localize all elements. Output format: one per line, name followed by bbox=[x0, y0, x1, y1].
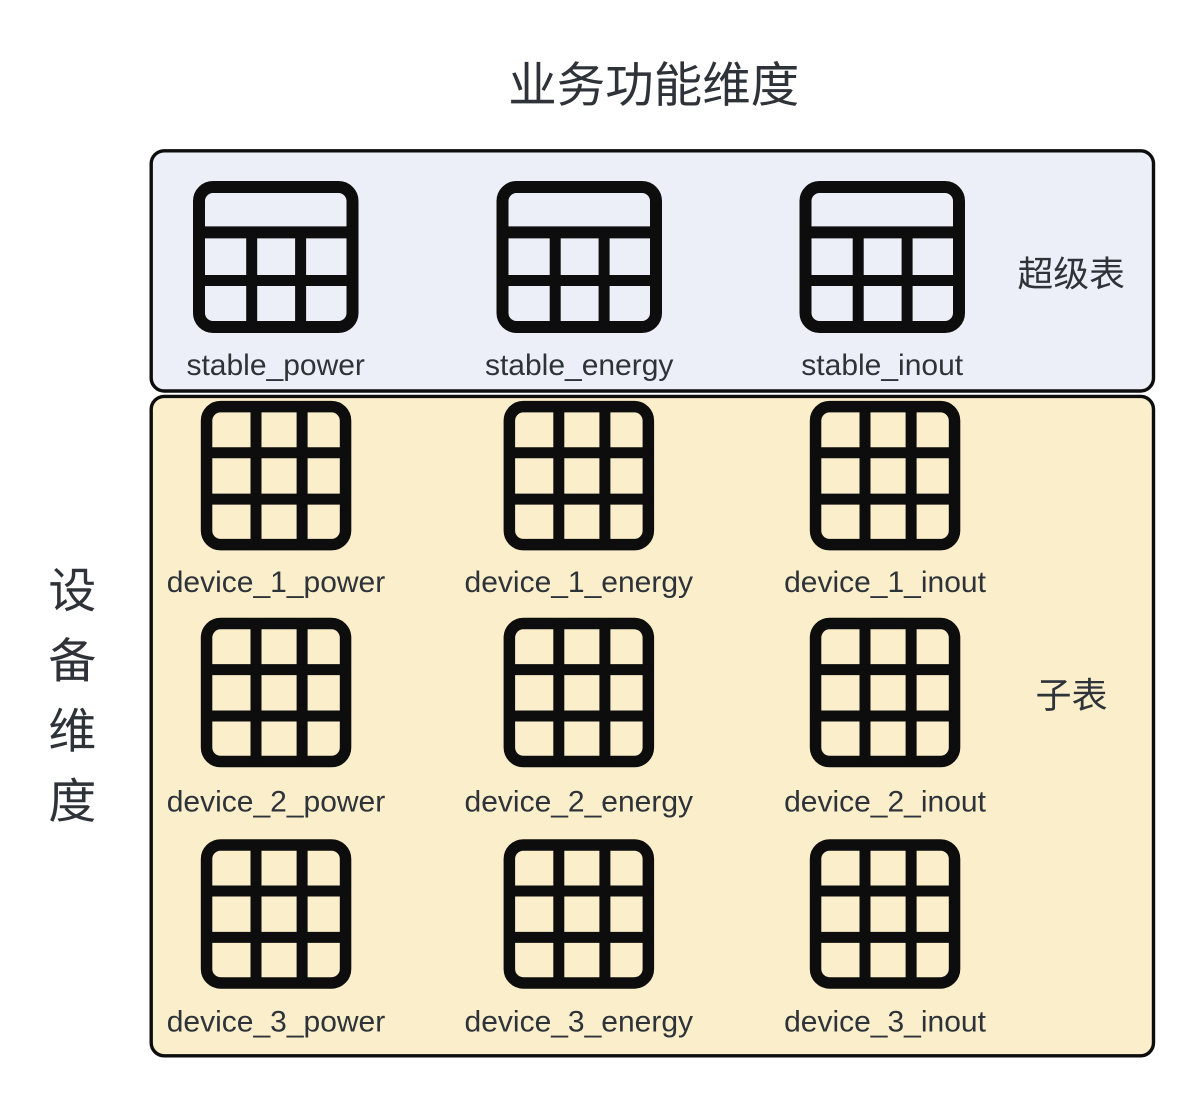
svg-text:device_3_inout: device_3_inout bbox=[784, 1006, 986, 1039]
svg-text:stable_energy: stable_energy bbox=[485, 349, 673, 382]
svg-text:stable_inout: stable_inout bbox=[801, 349, 963, 382]
svg-text:device_1_power: device_1_power bbox=[167, 566, 385, 599]
svg-text:device_2_power: device_2_power bbox=[167, 786, 385, 819]
svg-text:device_3_energy: device_3_energy bbox=[465, 1006, 694, 1039]
svg-text:device_1_energy: device_1_energy bbox=[465, 566, 694, 599]
svg-text:device_2_energy: device_2_energy bbox=[465, 786, 694, 819]
svg-text:stable_power: stable_power bbox=[186, 349, 364, 382]
svg-text:device_2_inout: device_2_inout bbox=[784, 786, 986, 819]
svg-text:device_3_power: device_3_power bbox=[167, 1006, 385, 1039]
svg-text:device_1_inout: device_1_inout bbox=[784, 566, 986, 599]
